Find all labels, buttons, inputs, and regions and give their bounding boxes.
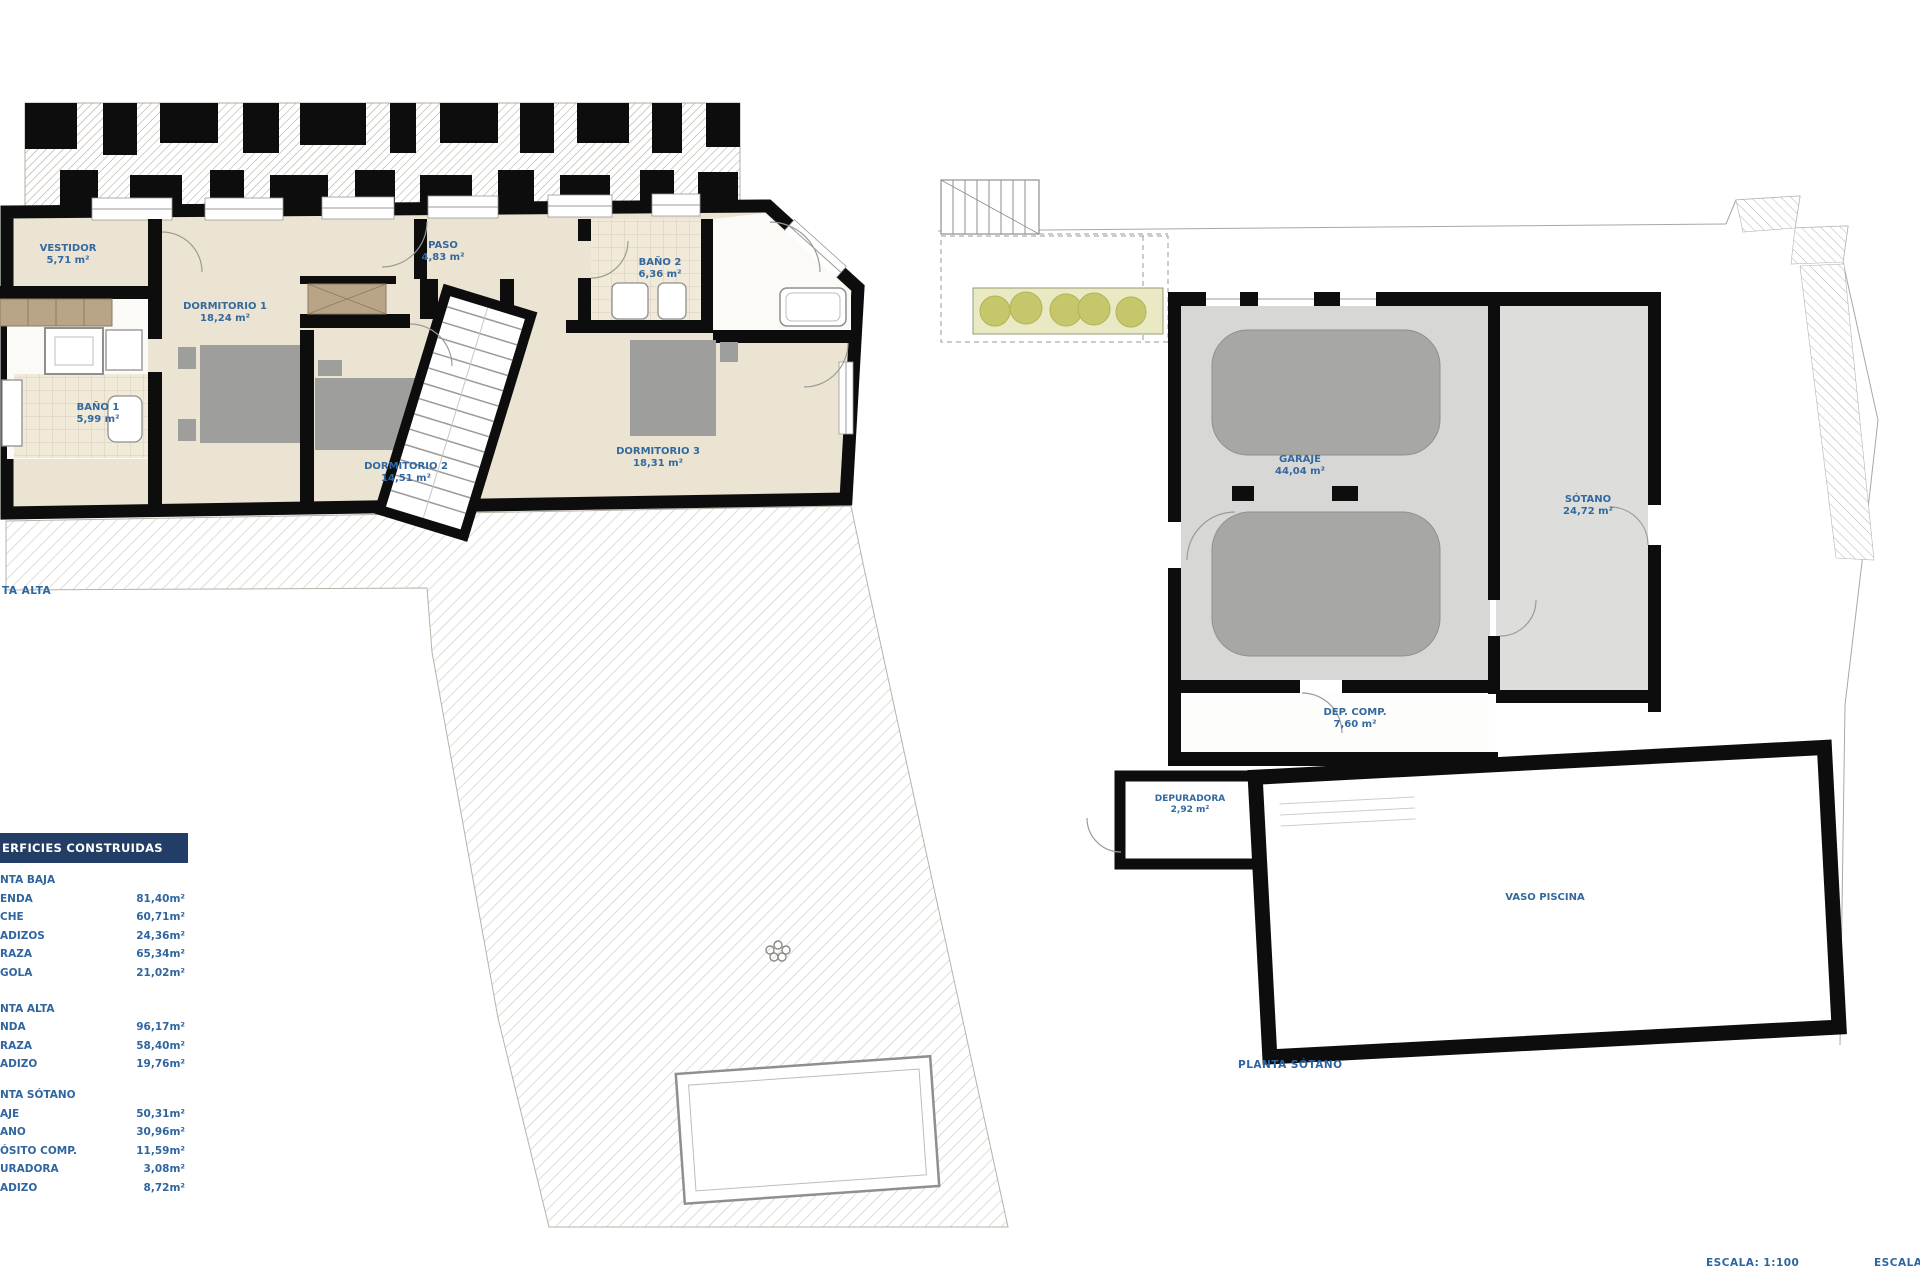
areas-section-planta-sotano: NTA SÓTANO AJE50,31m² ANO30,96m² ÓSITO C…: [0, 1086, 188, 1198]
room-name: VESTIDOR: [8, 243, 128, 255]
row-label: GOLA: [0, 964, 32, 983]
row-label: RAZA: [0, 945, 32, 964]
room-area: 4,83 m²: [383, 252, 503, 264]
room-area: 7,60 m²: [1295, 719, 1415, 731]
room-name: DEPURADORA: [1126, 794, 1254, 805]
row-value: 58,40m²: [136, 1037, 188, 1056]
row-value: 65,34m²: [136, 945, 188, 964]
terrace-pool: [676, 1056, 939, 1203]
table-row: GOLA21,02m²: [0, 964, 188, 983]
room-name: DORMITORIO 2: [336, 461, 476, 473]
row-label: ADIZO: [0, 1179, 37, 1198]
row-value: 11,59m²: [136, 1142, 188, 1161]
row-label: URADORA: [0, 1160, 59, 1179]
table-row: CHE60,71m²: [0, 908, 188, 927]
row-label: AJE: [0, 1105, 19, 1124]
room-label-vestidor: VESTIDOR 5,71 m²: [8, 243, 128, 266]
row-label: ADIZOS: [0, 927, 45, 946]
row-value: 30,96m²: [136, 1123, 188, 1142]
row-label: ANO: [0, 1123, 26, 1142]
room-area: 14,51 m²: [336, 473, 476, 485]
room-label-garaje: GARAJE 44,04 m²: [1240, 454, 1360, 477]
room-name: BAÑO 2: [600, 257, 720, 269]
areas-table: ERFICIES CONSTRUIDAS NTA BAJA ENDA81,40m…: [0, 833, 188, 1198]
table-row: ÓSITO COMP.11,59m²: [0, 1142, 188, 1161]
room-name: PASO: [383, 240, 503, 252]
room-area: 6,36 m²: [600, 269, 720, 281]
room-area: 18,24 m²: [155, 313, 295, 325]
planter: [973, 288, 1163, 334]
row-value: 19,76m²: [136, 1055, 188, 1074]
scale-label-right-clipped: ESCALA: [1874, 1257, 1920, 1269]
room-name: GARAJE: [1240, 454, 1360, 466]
table-row: RAZA58,40m²: [0, 1037, 188, 1056]
row-label: ADIZO: [0, 1055, 37, 1074]
row-value: 21,02m²: [136, 964, 188, 983]
row-value: 96,17m²: [136, 1018, 188, 1037]
room-label-sotano: SÓTANO 24,72 m²: [1528, 494, 1648, 517]
room-name: DEP. COMP.: [1295, 707, 1415, 719]
room-area: 24,72 m²: [1528, 506, 1648, 518]
row-value: 81,40m²: [136, 890, 188, 909]
depuradora-room: [1087, 776, 1260, 864]
table-row: ADIZO19,76m²: [0, 1055, 188, 1074]
room-area: 44,04 m²: [1240, 466, 1360, 478]
scale-label: ESCALA: 1:100: [1706, 1257, 1799, 1269]
section-title: NTA ALTA: [0, 1000, 188, 1019]
room-name: VASO PISCINA: [1465, 892, 1625, 904]
wardrobe: [308, 284, 386, 314]
row-value: 8,72m²: [144, 1179, 188, 1198]
areas-section-planta-baja: NTA BAJA ENDA81,40m² CHE60,71m² ADIZOS24…: [0, 871, 188, 983]
table-row: ADIZOS24,36m²: [0, 927, 188, 946]
room-label-depuradora: DEPURADORA 2,92 m²: [1126, 794, 1254, 815]
room-area: 18,31 m²: [588, 458, 728, 470]
room-name: DORMITORIO 3: [588, 446, 728, 458]
table-row: AJE50,31m²: [0, 1105, 188, 1124]
section-title: NTA BAJA: [0, 871, 188, 890]
room-area: 5,71 m²: [8, 255, 128, 267]
row-label: RAZA: [0, 1037, 32, 1056]
room-label-vaso-piscina: VASO PISCINA: [1465, 892, 1625, 904]
floorplan-drawing: [0, 0, 1920, 1280]
row-label: CHE: [0, 908, 24, 927]
areas-section-planta-alta: NTA ALTA NDA96,17m² RAZA58,40m² ADIZO19,…: [0, 1000, 188, 1074]
table-row: ANO30,96m²: [0, 1123, 188, 1142]
row-label: ÓSITO COMP.: [0, 1142, 77, 1161]
table-row: ADIZO8,72m²: [0, 1179, 188, 1198]
table-row: RAZA65,34m²: [0, 945, 188, 964]
row-value: 60,71m²: [136, 908, 188, 927]
room-label-dep-comp: DEP. COMP. 7,60 m²: [1295, 707, 1415, 730]
room-label-bano1: BAÑO 1 5,99 m²: [38, 402, 158, 425]
areas-table-header: ERFICIES CONSTRUIDAS: [0, 833, 188, 863]
room-area: 5,99 m²: [38, 414, 158, 426]
room-label-dormitorio2: DORMITORIO 2 14,51 m²: [336, 461, 476, 484]
section-title: NTA SÓTANO: [0, 1086, 188, 1105]
row-value: 3,08m²: [144, 1160, 188, 1179]
basement-plan: [938, 180, 1878, 1057]
room-label-dormitorio1: DORMITORIO 1 18,24 m²: [155, 301, 295, 324]
room-label-dormitorio3: DORMITORIO 3 18,31 m²: [588, 446, 728, 469]
slope-hatch: [1736, 196, 1874, 560]
plan-caption-upper: TA ALTA: [2, 585, 51, 597]
table-row: URADORA3,08m²: [0, 1160, 188, 1179]
room-label-paso: PASO 4,83 m²: [383, 240, 503, 263]
room-area: 2,92 m²: [1126, 805, 1254, 816]
room-name: DORMITORIO 1: [155, 301, 295, 313]
row-value: 24,36m²: [136, 927, 188, 946]
row-value: 50,31m²: [136, 1105, 188, 1124]
room-name: SÓTANO: [1528, 494, 1648, 506]
row-label: NDA: [0, 1018, 26, 1037]
room-label-bano2: BAÑO 2 6,36 m²: [600, 257, 720, 280]
bathroom-1: [0, 299, 148, 459]
table-row: NDA96,17m²: [0, 1018, 188, 1037]
row-label: ENDA: [0, 890, 33, 909]
table-row: ENDA81,40m²: [0, 890, 188, 909]
room-name: BAÑO 1: [38, 402, 158, 414]
floorplan-sheet: VESTIDOR 5,71 m² DORMITORIO 1 18,24 m² B…: [0, 0, 1920, 1280]
plan-caption-basement: PLANTA SÓTANO: [1238, 1059, 1343, 1071]
